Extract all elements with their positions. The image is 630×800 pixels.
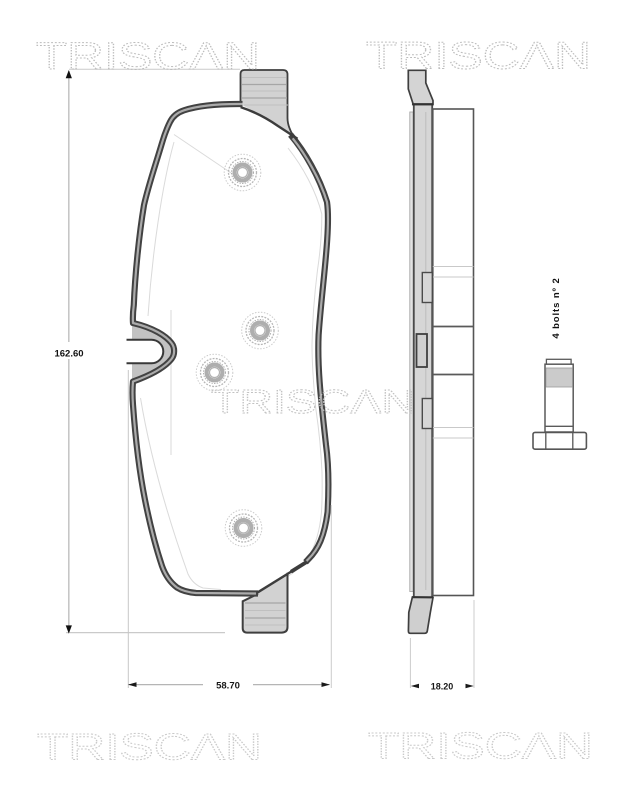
svg-text:58.70: 58.70: [216, 681, 240, 692]
svg-text:TRISCΛN: TRISCΛN: [36, 36, 260, 78]
svg-text:TRISCΛN: TRISCΛN: [37, 727, 262, 768]
svg-text:162.60: 162.60: [54, 349, 83, 360]
svg-text:TRISCΛN: TRISCΛN: [368, 726, 593, 767]
svg-text:4 bolts nº 2: 4 bolts nº 2: [551, 277, 562, 338]
svg-text:18.20: 18.20: [431, 681, 454, 691]
svg-text:TRISCΛN: TRISCΛN: [366, 36, 591, 78]
svg-text:TRISCΛN: TRISCΛN: [211, 383, 415, 420]
